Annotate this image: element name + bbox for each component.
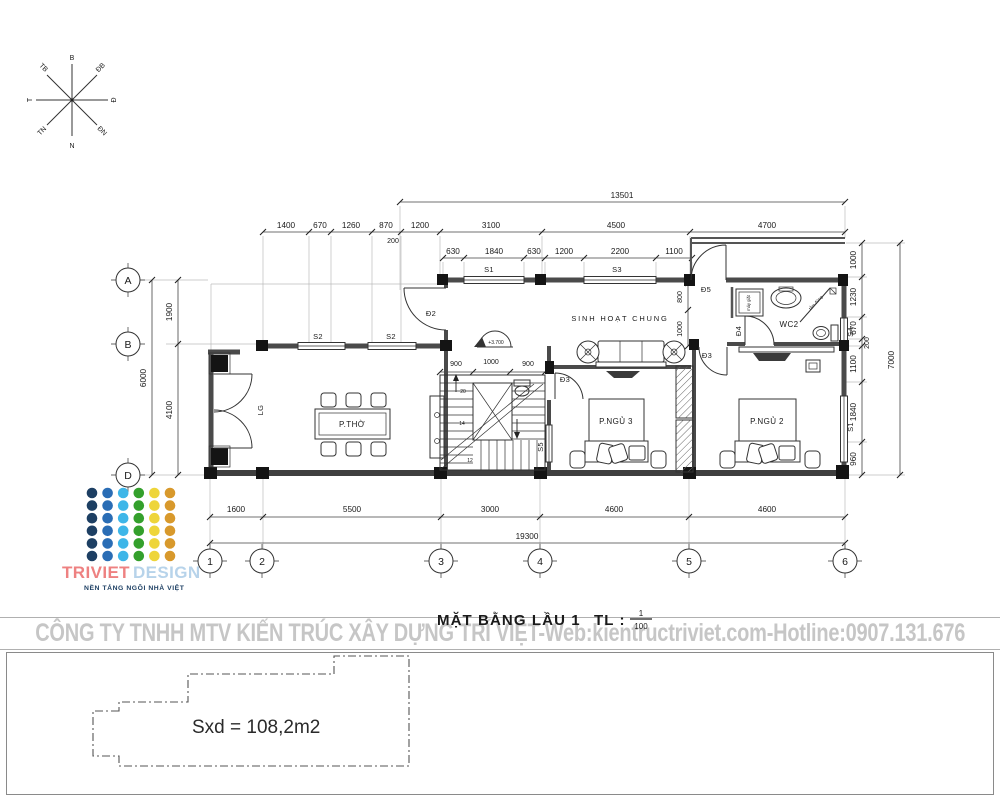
bed-bedroom2 xyxy=(720,399,820,468)
window-label-s2: S2 xyxy=(313,332,323,341)
dim-label: 1200 xyxy=(411,221,430,230)
window-label-s1: S1 xyxy=(484,265,494,274)
dim-label: 4700 xyxy=(758,221,777,230)
door-label-d5: Đ5 xyxy=(701,285,711,294)
toilet-icon xyxy=(831,325,838,341)
grid-col-3: 3 xyxy=(438,556,444,568)
dim-label: 1840 xyxy=(849,402,858,421)
washer-label: máy giặt xyxy=(746,294,751,311)
grid-col-4: 4 xyxy=(537,556,543,568)
dim-label: 4100 xyxy=(165,400,174,419)
compass-northwest-label: TB xyxy=(37,62,49,74)
logo-brand-primary: TRIVIET xyxy=(62,563,130,582)
area-diagram-panel: Sxd = 108,2m2 xyxy=(6,652,994,795)
dim-label: 2200 xyxy=(611,247,630,256)
door-label-lg: LG xyxy=(256,405,265,416)
dim-label: 4500 xyxy=(607,221,626,230)
shower-label: tắm đứng xyxy=(808,294,824,311)
logo-dots xyxy=(84,486,180,562)
door-label-d3: Đ3 xyxy=(560,375,570,384)
floor-plan-sheet: CÔNG TY TNHH MTV KIẾN TRÚC XÂY DỰNG TRÍ … xyxy=(0,0,1000,800)
built-area-outline xyxy=(93,656,409,766)
dim-label: 3100 xyxy=(482,221,501,230)
level-marker: +3.700 xyxy=(474,331,513,347)
dim-left-total: 6000 xyxy=(139,368,148,387)
dim-label: 900 xyxy=(522,361,534,368)
logo-brand-secondary: DESIGN xyxy=(133,563,201,582)
tv-icon xyxy=(753,353,791,361)
room-label-wc: WC2 xyxy=(780,320,799,329)
title-scale-denominator: 100 xyxy=(634,622,648,631)
compass-east-label: Đ xyxy=(111,97,118,102)
dim-label: 5500 xyxy=(343,505,362,514)
dim-label: 870 xyxy=(379,221,393,230)
dim-label: 670 xyxy=(313,221,327,230)
window-label-s1: S1 xyxy=(846,422,855,432)
dim-label: 960 xyxy=(849,452,858,466)
dim-right-total: 7000 xyxy=(887,350,896,369)
stair-count-label: 12 xyxy=(467,458,473,464)
wardrobe xyxy=(676,366,693,472)
dimension-chains: 13501 1400 670 1260 870 1200 3100 4500 4… xyxy=(139,191,903,546)
dim-label: 1230 xyxy=(849,287,858,306)
stair-count-label: 20 xyxy=(460,389,466,395)
room-label-living: SINH HOẠT CHUNG xyxy=(571,314,668,323)
drawing-title: MẶT BẰNG LẦU 1 TL : 1 100 xyxy=(437,609,652,631)
window-label-s4: S4 xyxy=(846,327,855,337)
window-label-s5: S5 xyxy=(536,442,545,452)
grid-row-b: B xyxy=(124,339,131,351)
compass-southeast-label: ĐN xyxy=(96,125,108,137)
dim-label: 1200 xyxy=(555,247,574,256)
logo-brand: TRIVIETDESIGN xyxy=(62,563,232,583)
dim-top-total: 13501 xyxy=(611,191,634,200)
dim-label: 1000 xyxy=(483,359,499,366)
area-diagram: Sxd = 108,2m2 xyxy=(7,653,991,792)
compass-south-label: N xyxy=(69,143,74,150)
company-logo: TRIVIETDESIGN NỀN TẢNG NGÔI NHÀ VIỆT xyxy=(62,486,232,592)
grid-col-6: 6 xyxy=(842,556,848,568)
level-value: +3.700 xyxy=(488,340,504,346)
compass-north-label: B xyxy=(70,55,75,62)
dim-label: 1840 xyxy=(485,247,504,256)
grid-col-5: 5 xyxy=(686,556,692,568)
room-label-worship: P.THỜ xyxy=(339,420,365,429)
dim-bottom-total: 19300 xyxy=(516,532,539,541)
dim-label: 4600 xyxy=(758,505,777,514)
door-label-d4: Đ4 xyxy=(734,326,743,336)
logo-tagline: NỀN TẢNG NGÔI NHÀ VIỆT xyxy=(84,585,232,592)
dim-label: 630 xyxy=(446,247,460,256)
dim-label: 1100 xyxy=(665,247,683,256)
window-label-s2: S2 xyxy=(386,332,396,341)
dim-label: 630 xyxy=(527,247,541,256)
compass-rose: B N Đ T ĐB TB TN ĐN xyxy=(27,55,118,150)
compass-northeast-label: ĐB xyxy=(95,62,107,74)
title-scale-numerator: 1 xyxy=(639,609,644,618)
dim-label: 200 xyxy=(387,238,399,245)
compass-southwest-label: TN xyxy=(37,126,49,138)
room-label-bedroom3: P.NGỦ 3 xyxy=(599,417,633,426)
grid-row-a: A xyxy=(124,275,131,287)
dim-label: 1000 xyxy=(849,250,858,269)
sofa xyxy=(577,341,685,367)
dim-label: 1260 xyxy=(342,221,361,230)
desk-bedroom2 xyxy=(739,347,834,372)
dim-label: 800 xyxy=(677,291,684,303)
dim-label: 200 xyxy=(864,337,871,349)
compass-west-label: T xyxy=(27,97,34,102)
dim-label: 1000 xyxy=(677,321,684,337)
room-labels: P.THỜ SINH HOẠT CHUNG WC2 P.NGỦ 3 P.NGỦ … xyxy=(339,314,799,429)
wc-fixtures: máy giặt tắm đứng xyxy=(736,287,838,341)
dim-label: 1100 xyxy=(849,355,858,373)
title-scale-label: TL : xyxy=(594,612,626,629)
dim-label: 1900 xyxy=(165,302,174,321)
stair-count-label: 14 xyxy=(459,421,465,427)
grid-row-d: D xyxy=(124,470,132,482)
dim-label: 4600 xyxy=(605,505,624,514)
grid-col-2: 2 xyxy=(259,556,265,568)
door-label-d2: Đ2 xyxy=(426,309,436,318)
dim-label: 1400 xyxy=(277,221,296,230)
area-note: Sxd = 108,2m2 xyxy=(192,717,320,738)
bed-bedroom3 xyxy=(570,399,666,468)
door-label-d3: Đ3 xyxy=(702,351,712,360)
window-label-s3: S3 xyxy=(612,265,622,274)
tv-icon xyxy=(606,371,640,378)
title-text: MẶT BẰNG LẦU 1 xyxy=(437,611,581,629)
dim-label: 3000 xyxy=(481,505,500,514)
extension-lines xyxy=(140,206,905,549)
room-label-bedroom2: P.NGỦ 2 xyxy=(750,417,784,426)
dim-label: 900 xyxy=(450,361,462,368)
